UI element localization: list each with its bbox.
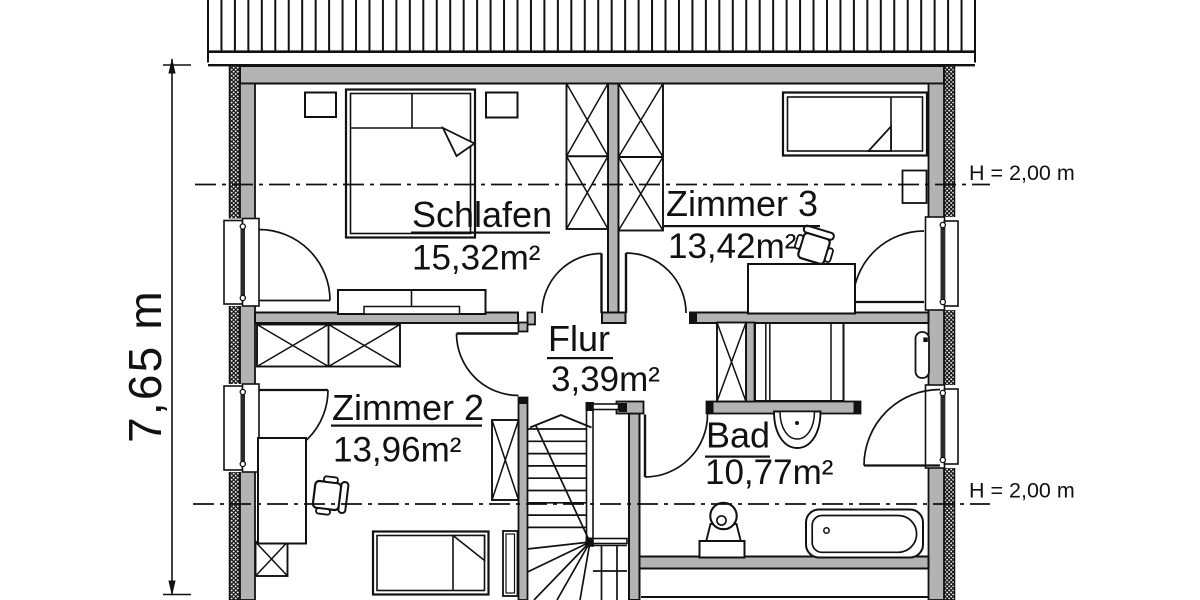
svg-text:Zimmer 2: Zimmer 2	[332, 387, 484, 428]
svg-text:Zimmer 3: Zimmer 3	[666, 183, 818, 224]
svg-text:15,32m²: 15,32m²	[412, 239, 540, 278]
svg-text:13,42m²: 13,42m²	[668, 227, 796, 266]
svg-text:H = 2,00 m: H = 2,00 m	[969, 161, 1075, 185]
svg-text:13,96m²: 13,96m²	[333, 431, 461, 470]
svg-text:3,39m²: 3,39m²	[551, 360, 660, 399]
svg-text:Schlafen: Schlafen	[412, 194, 552, 235]
svg-text:7,65 m: 7,65 m	[119, 289, 171, 443]
svg-text:H = 2,00 m: H = 2,00 m	[969, 479, 1075, 503]
svg-text:10,77m²: 10,77m²	[705, 453, 833, 492]
svg-text:Bad: Bad	[706, 415, 770, 456]
svg-text:Flur: Flur	[548, 318, 610, 359]
